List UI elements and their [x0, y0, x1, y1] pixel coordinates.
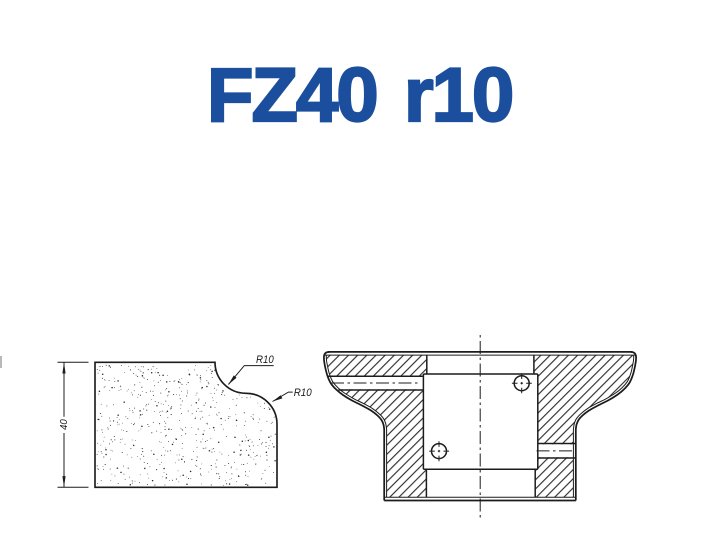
svg-text:R10: R10: [256, 354, 274, 366]
svg-text:40: 40: [58, 419, 70, 430]
svg-text:R10: R10: [294, 387, 313, 399]
